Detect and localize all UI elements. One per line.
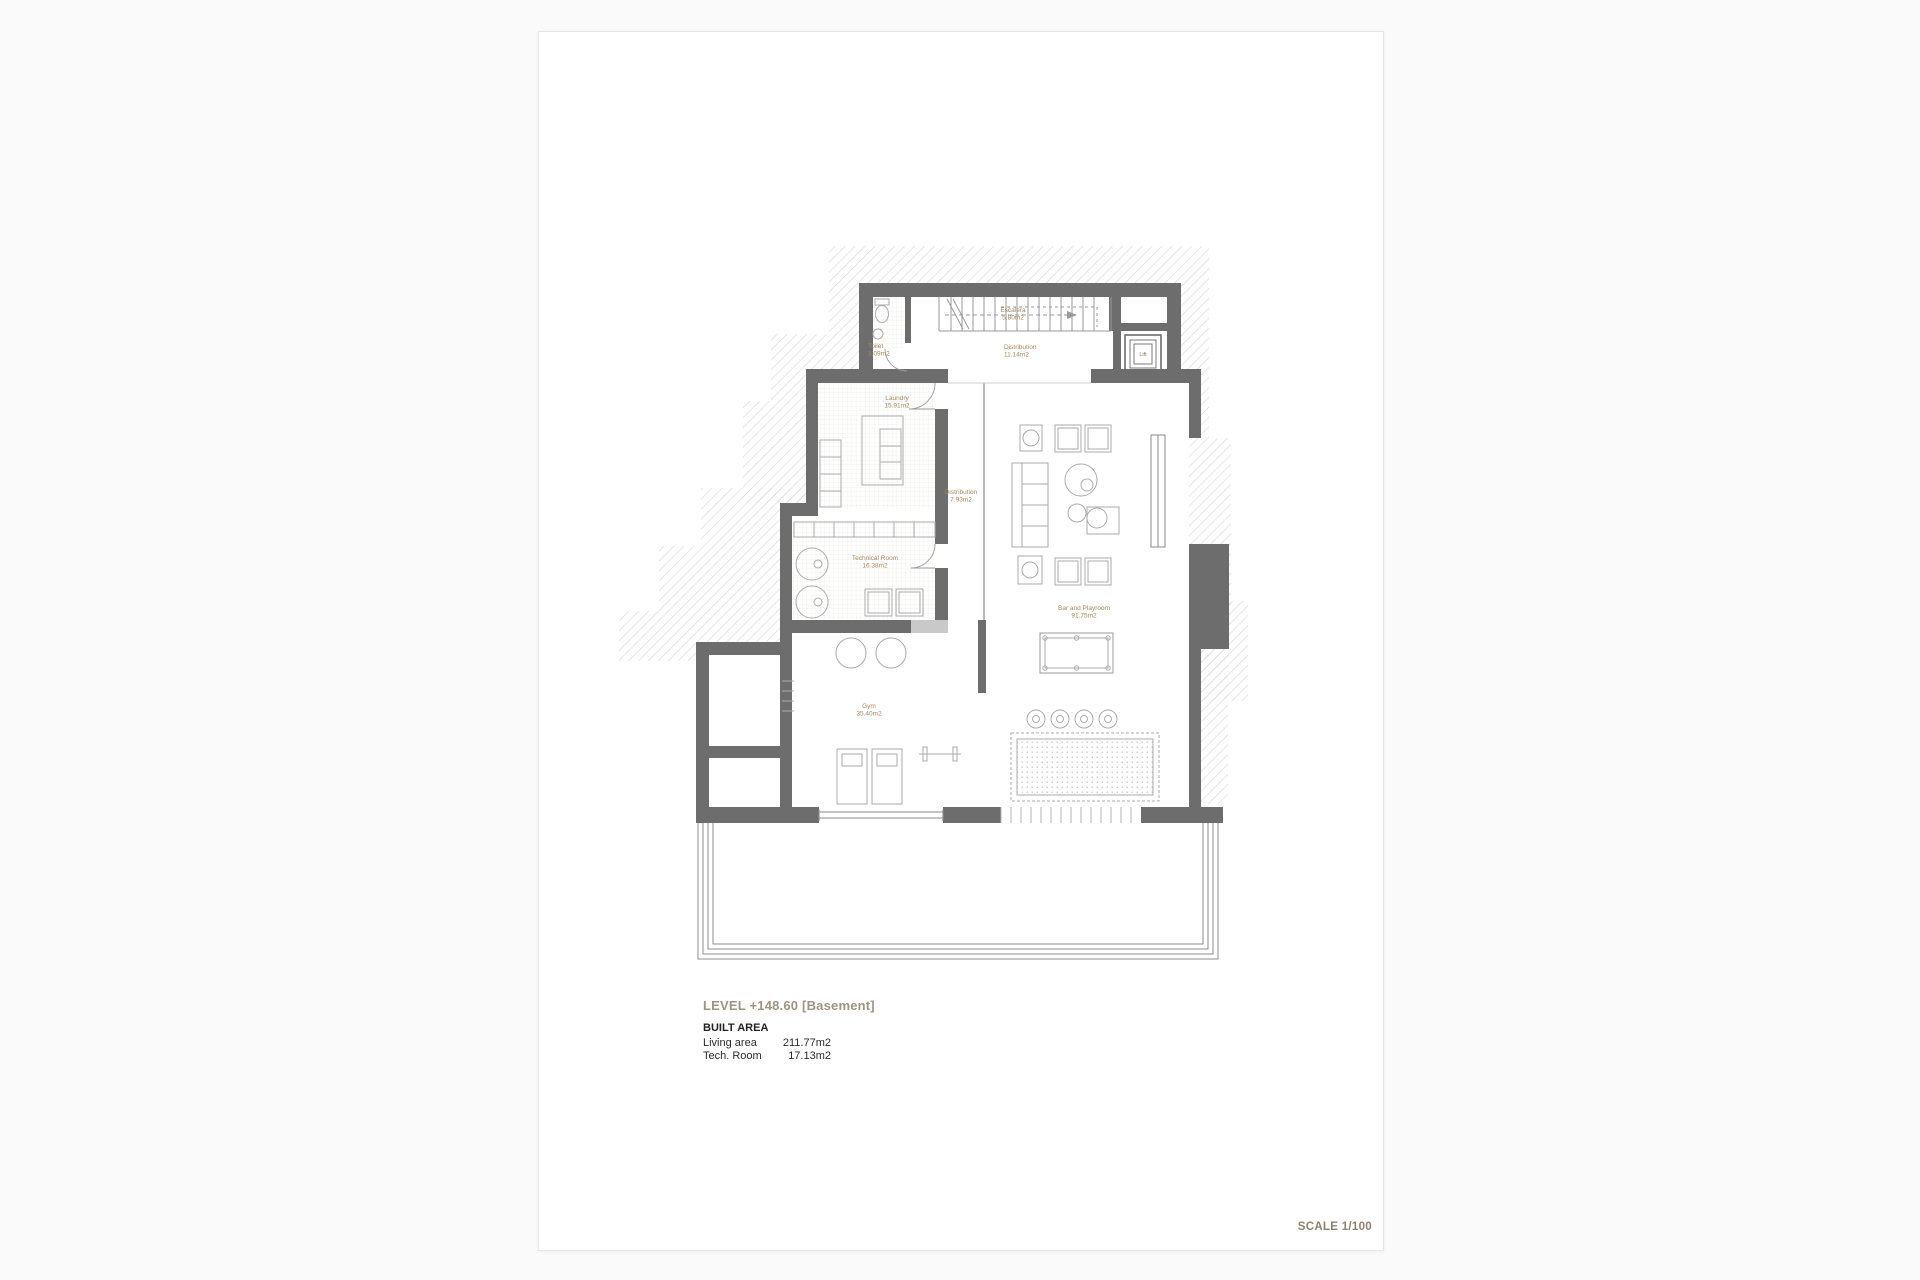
built-area-heading: BUILT AREA <box>703 1022 833 1034</box>
room-label-laundry-name: Laundry <box>885 395 909 402</box>
level-title: LEVEL +148.60 [Basement] <box>703 998 833 1013</box>
room-label-distribution-corridor-area: 7.93m2 <box>950 497 972 504</box>
built-area-table: Living area 211.77m2 Tech. Room 17.13m2 <box>703 1037 833 1063</box>
room-label-toilet-area: 3.09m2 <box>868 351 890 358</box>
room-label-lift: Lift <box>1139 352 1147 358</box>
floor-plan: Escalera 5.80m2 Toilet 3.09m2 Distributi… <box>539 32 1383 1250</box>
room-label-staircase-area: 5.80m2 <box>1002 315 1024 322</box>
title-block: LEVEL +148.60 [Basement] BUILT AREA Livi… <box>703 998 833 1063</box>
room-label-distribution-hall-area: 11.14m2 <box>1004 352 1029 359</box>
area-value: 211.77m2 <box>783 1037 831 1050</box>
terrace-steps <box>698 823 1218 959</box>
area-label: Living area <box>703 1037 757 1050</box>
room-label-technical-room-area: 16.38m2 <box>862 563 888 570</box>
area-label: Tech. Room <box>703 1050 762 1063</box>
scale-label: SCALE 1/100 <box>1298 1221 1372 1233</box>
room-label-staircase-name: Escalera <box>1000 307 1026 314</box>
room-label-laundry-area: 15.91m2 <box>884 403 910 410</box>
room-label-bar-playroom-name: Bar and Playroom <box>1058 605 1110 612</box>
area-row-tech: Tech. Room 17.13m2 <box>703 1050 831 1063</box>
room-label-technical-room-name: Technical Room <box>852 555 898 562</box>
room-label-distribution-corridor-name: Distribution <box>945 489 978 496</box>
area-value: 17.13m2 <box>788 1050 831 1063</box>
light-partition <box>911 620 948 633</box>
drawing-sheet: Escalera 5.80m2 Toilet 3.09m2 Distributi… <box>538 31 1384 1251</box>
area-row-living: Living area 211.77m2 <box>703 1037 831 1050</box>
room-label-bar-playroom-area: 91.75m2 <box>1071 613 1097 620</box>
room-label-gym-name: Gym <box>862 703 876 710</box>
room-label-distribution-hall-name: Distribution <box>1004 344 1037 351</box>
room-label-gym-area: 35.40m2 <box>856 711 882 718</box>
light-wells <box>709 655 780 807</box>
room-label-toilet-name: Toilet <box>868 343 883 350</box>
